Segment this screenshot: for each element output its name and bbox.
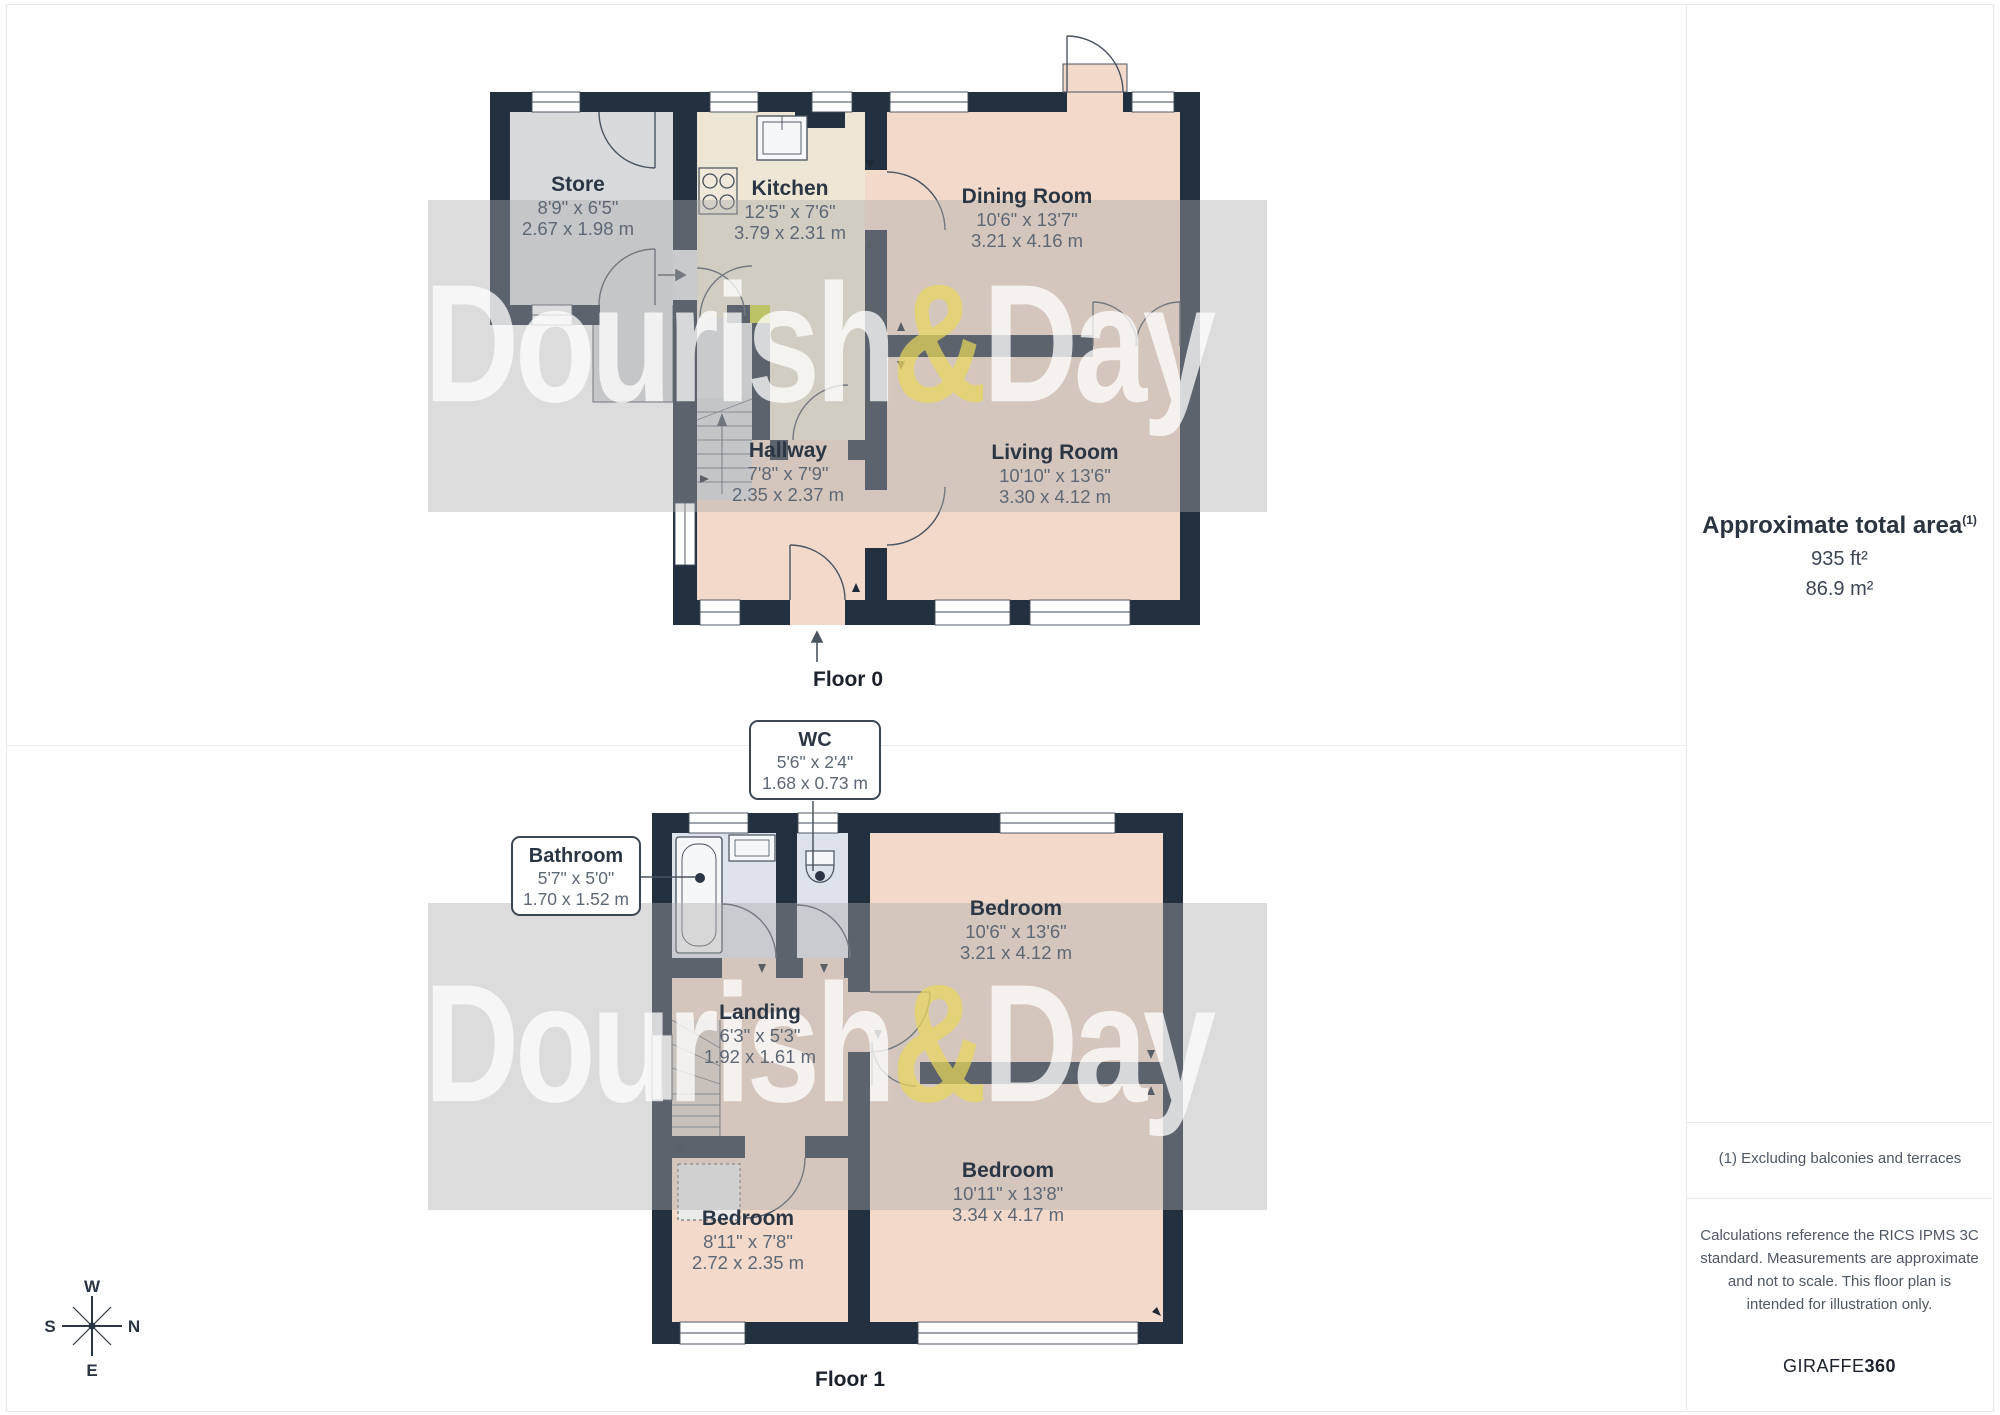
room-label-landing: Landing 6'3" x 5'3" 1.92 x 1.61 m (704, 1000, 816, 1067)
compass: W E S N (44, 1277, 140, 1380)
room-dims-metric: 2.35 x 2.37 m (732, 484, 844, 505)
room-name: Bathroom (517, 844, 635, 868)
room-name: Bedroom (960, 896, 1072, 921)
room-dims-metric: 3.21 x 4.16 m (962, 230, 1093, 251)
compass-top: W (84, 1277, 101, 1296)
watermark-band-floor1 (428, 903, 1267, 1210)
room-dims-metric: 1.68 x 0.73 m (755, 773, 875, 794)
brand-number: 360 (1864, 1356, 1896, 1376)
total-area-title-text: Approximate total area (1702, 512, 1962, 539)
brand-name: GIRAFFE (1783, 1356, 1865, 1376)
room-dims-metric: 3.79 x 2.31 m (734, 222, 846, 243)
total-area-imperial: 935 ft² (1687, 548, 1992, 571)
room-label-bedroom-1: Bedroom 10'6" x 13'6" 3.21 x 4.12 m (960, 896, 1072, 963)
giraffe360-logo: GIRAFFE360 (1687, 1356, 1992, 1377)
room-label-dining-room: Dining Room 10'6" x 13'7" 3.21 x 4.16 m (962, 184, 1093, 251)
watermark-band-floor0 (428, 200, 1267, 512)
room-name: Bedroom (952, 1158, 1064, 1183)
room-name: Landing (704, 1000, 816, 1025)
total-area-title: Approximate total area(1) (1687, 512, 1992, 540)
bathroom-callout-dot (695, 873, 705, 883)
floor0-label: Floor 0 (813, 668, 883, 692)
room-dims-metric: 3.21 x 4.12 m (960, 942, 1072, 963)
floor1-label: Floor 1 (815, 1368, 885, 1392)
wc-callout: WC 5'6" x 2'4" 1.68 x 0.73 m (749, 720, 881, 800)
kitchen-sink-icon (757, 116, 807, 160)
room-label-store: Store 8'9" x 6'5" 2.67 x 1.98 m (522, 172, 634, 239)
room-label-living-room: Living Room 10'10" x 13'6" 3.30 x 4.12 m (991, 440, 1118, 507)
room-dims-imperial: 8'9" x 6'5" (522, 197, 634, 218)
entry-arrow-front (812, 632, 822, 662)
footnote: (1) Excluding balconies and terraces (1700, 1150, 1980, 1167)
compass-bottom: E (86, 1361, 97, 1380)
room-name: Store (522, 172, 634, 197)
room-dims-imperial: 7'8" x 7'9" (732, 463, 844, 484)
disclaimer: Calculations reference the RICS IPMS 3C … (1699, 1224, 1980, 1316)
room-dims-imperial: 12'5" x 7'6" (734, 201, 846, 222)
room-dims-metric: 2.67 x 1.98 m (522, 218, 634, 239)
bathroom-sink-icon (729, 835, 775, 861)
room-name: Hallway (732, 438, 844, 463)
floorplan-page: W E S N Dourish&Day Dourish&Day Store 8'… (0, 0, 2000, 1415)
compass-right: N (128, 1317, 140, 1336)
room-dims-metric: 1.92 x 1.61 m (704, 1046, 816, 1067)
compass-left: S (44, 1317, 55, 1336)
room-label-bedroom-2: Bedroom 8'11" x 7'8" 2.72 x 2.35 m (692, 1206, 804, 1273)
room-name: Dining Room (962, 184, 1093, 209)
total-area-footnote-ref: (1) (1962, 513, 1977, 527)
room-dims-imperial: 10'10" x 13'6" (991, 465, 1118, 486)
room-dims-metric: 3.30 x 4.12 m (991, 486, 1118, 507)
room-dims-metric: 1.70 x 1.52 m (517, 889, 635, 910)
room-dims-metric: 3.34 x 4.17 m (952, 1204, 1064, 1225)
room-name: Living Room (991, 440, 1118, 465)
room-label-kitchen: Kitchen 12'5" x 7'6" 3.79 x 2.31 m (734, 176, 846, 243)
room-dims-imperial: 10'6" x 13'7" (962, 209, 1093, 230)
room-dims-imperial: 5'6" x 2'4" (755, 752, 875, 773)
room-dims-imperial: 5'7" x 5'0" (517, 868, 635, 889)
room-dims-metric: 2.72 x 2.35 m (692, 1252, 804, 1273)
room-name: Kitchen (734, 176, 846, 201)
room-dims-imperial: 8'11" x 7'8" (692, 1231, 804, 1252)
total-area-metric: 86.9 m² (1687, 578, 1992, 601)
room-label-bedroom-3: Bedroom 10'11" x 13'8" 3.34 x 4.17 m (952, 1158, 1064, 1225)
room-dims-imperial: 6'3" x 5'3" (704, 1025, 816, 1046)
room-dims-imperial: 10'6" x 13'6" (960, 921, 1072, 942)
room-name: Bedroom (692, 1206, 804, 1231)
room-dims-imperial: 10'11" x 13'8" (952, 1183, 1064, 1204)
room-name: WC (755, 728, 875, 752)
room-label-hallway: Hallway 7'8" x 7'9" 2.35 x 2.37 m (732, 438, 844, 505)
wc-callout-dot (815, 871, 825, 881)
bathroom-callout: Bathroom 5'7" x 5'0" 1.70 x 1.52 m (511, 836, 641, 916)
